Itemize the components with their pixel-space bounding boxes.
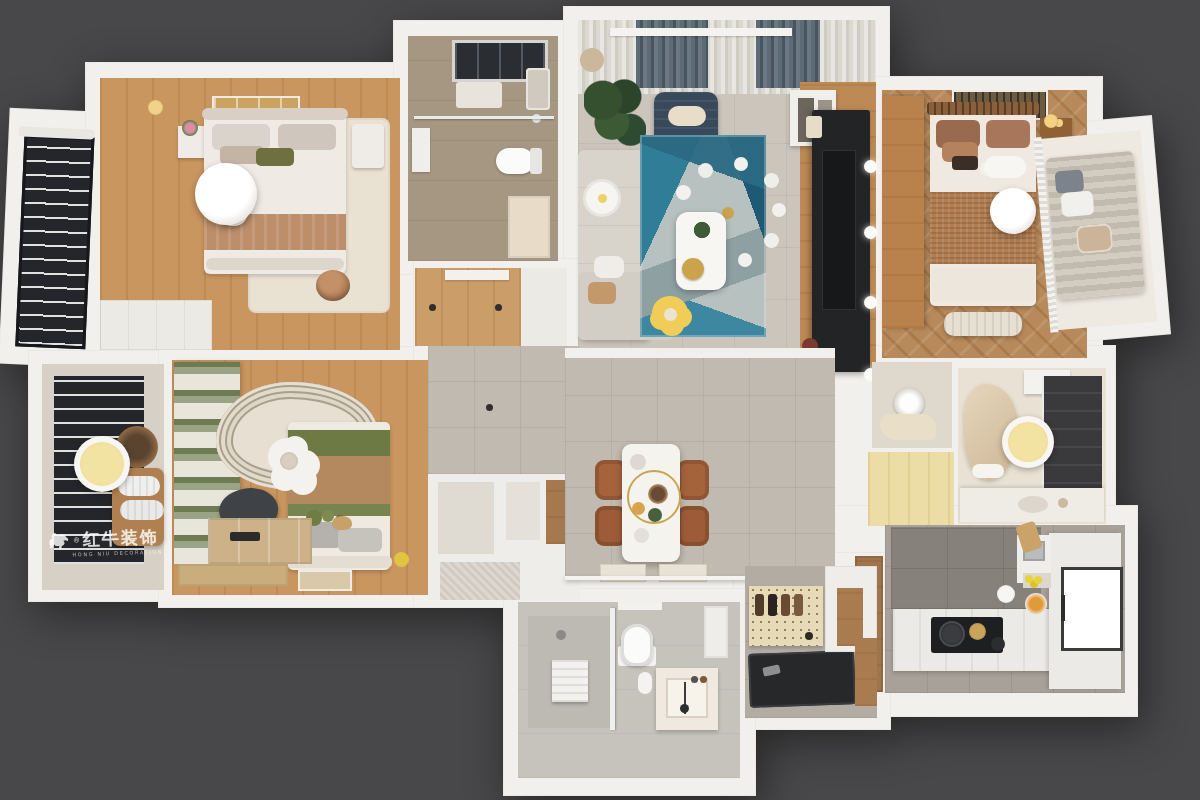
plate <box>630 454 646 470</box>
tv-screen <box>822 150 856 310</box>
yellow-ceiling-lamp <box>1002 416 1054 468</box>
rattan-headboard <box>927 102 1039 115</box>
room-balcony-right <box>1022 115 1171 345</box>
monstera-plant <box>584 78 646 152</box>
textured-mat <box>440 562 520 600</box>
hanging-shoes <box>755 594 764 616</box>
bath-mat <box>456 82 502 108</box>
flower-vase <box>182 120 198 136</box>
wood-panel-tall <box>855 638 877 706</box>
pillow-grey2 <box>338 528 382 552</box>
bottle <box>700 676 707 683</box>
toilet <box>496 148 534 174</box>
closet <box>100 300 212 350</box>
daisy-center <box>598 194 607 203</box>
cushion-roll <box>120 500 164 520</box>
footboard <box>206 258 344 270</box>
plate <box>634 528 649 543</box>
room-cloak-floor <box>868 452 954 526</box>
white-pillow <box>1060 191 1094 218</box>
pan <box>991 637 1005 651</box>
downlight <box>429 304 436 311</box>
ceiling-lamp-gold <box>148 100 163 115</box>
lemon <box>1025 575 1033 583</box>
drying-rack-window <box>15 135 94 350</box>
grey-pillow <box>1054 169 1084 193</box>
dresser-right <box>352 124 384 168</box>
toilet-tank <box>530 148 542 174</box>
vanity-basin <box>656 668 718 730</box>
wall-spotlight <box>864 226 877 239</box>
room-dining-floor <box>565 358 835 580</box>
hall-cabinet <box>521 268 567 346</box>
hall-wood-floor <box>415 268 567 346</box>
bed-bench <box>944 312 1022 336</box>
niche-inner <box>438 482 494 554</box>
dining-chair <box>677 460 709 500</box>
wall-shelf <box>618 602 662 610</box>
towel <box>972 464 1004 478</box>
desk-boxes <box>208 518 312 564</box>
fridge-handle <box>1061 595 1065 621</box>
room-entry-floor <box>745 566 877 718</box>
open-door-leaf <box>445 270 509 280</box>
vanity-mirror <box>526 68 550 110</box>
knot-ball-pillow <box>316 270 350 301</box>
registered-mark: ® <box>73 536 80 544</box>
wall-spotlight <box>864 160 877 173</box>
pendant-lamp <box>195 163 257 225</box>
gold-ring-chandelier <box>627 470 681 524</box>
toilet-bowl <box>621 624 653 666</box>
curved-bench <box>880 414 936 440</box>
wood-wardrobe <box>882 96 924 328</box>
door <box>508 196 550 258</box>
niche-inner2 <box>506 482 540 540</box>
room-utility-floor <box>872 362 952 448</box>
watermark: ® 红牛装饰 HONG NIU DECORATION <box>46 525 187 559</box>
tan-pillow <box>588 282 616 304</box>
hall-storage-niche <box>428 474 580 600</box>
cloud-pillow <box>984 156 1026 178</box>
soap <box>1058 498 1068 508</box>
peg-hook <box>805 632 813 640</box>
towel-roll <box>638 672 652 694</box>
white-pillow <box>594 256 624 278</box>
room-living-floor <box>578 20 876 352</box>
drain <box>680 704 689 713</box>
hat-tan <box>332 516 352 530</box>
fridge <box>1061 567 1123 651</box>
headboard <box>202 108 348 120</box>
downlight <box>486 404 493 411</box>
black-floor-mat <box>748 650 856 708</box>
room-bedroom2-floor <box>172 360 440 595</box>
floorplan-render: ® 红牛装饰 HONG NIU DECORATION <box>0 0 1200 800</box>
tan-pillow <box>1075 223 1113 254</box>
flower-lamp-center <box>280 452 298 470</box>
hall-tile-floor <box>428 346 580 474</box>
floor-picture-frame <box>298 570 352 591</box>
pot <box>939 621 965 647</box>
pouf-center <box>664 308 677 321</box>
console-towel <box>806 116 822 138</box>
orange-plate <box>1025 593 1047 615</box>
low-shelf <box>178 564 288 586</box>
shower-glass <box>414 116 554 119</box>
pillow-olive <box>256 148 294 166</box>
room-balcony-left <box>0 108 108 368</box>
gold-pot <box>969 623 986 640</box>
laptop <box>230 532 260 541</box>
gold-tray <box>682 258 704 280</box>
half-wall <box>565 576 751 580</box>
wall-spotlight <box>864 296 877 309</box>
living-dining-beam <box>565 348 835 358</box>
toy-duck <box>394 552 409 567</box>
table-plant <box>692 220 712 240</box>
shower-drain <box>556 630 566 640</box>
wall-shelf <box>412 128 430 172</box>
yellow-ceiling-lamp <box>74 436 130 492</box>
dining-chair <box>677 506 709 546</box>
paper-towel <box>997 585 1015 603</box>
room-bath2-floor <box>518 602 740 778</box>
shower-bench <box>552 660 588 702</box>
curtain-rail <box>610 28 792 36</box>
brand-name-cn: 红牛装饰 <box>83 526 160 552</box>
slippers <box>952 156 978 170</box>
room-ensuite-floor <box>958 368 1106 524</box>
room-kitchen-floor <box>885 525 1125 693</box>
olive-band2 <box>288 504 390 516</box>
bed-footer <box>932 268 1034 302</box>
glass-partition <box>610 608 615 730</box>
pillow <box>278 124 336 150</box>
side-table <box>580 48 604 72</box>
room-bath1-floor <box>408 36 558 261</box>
cream-pillow <box>668 106 706 126</box>
room-bedroom1-floor <box>100 78 400 350</box>
bull-logo-icon <box>46 530 71 551</box>
wall-niche <box>704 606 728 658</box>
downlight <box>495 304 502 311</box>
sink-oval <box>1018 496 1048 513</box>
